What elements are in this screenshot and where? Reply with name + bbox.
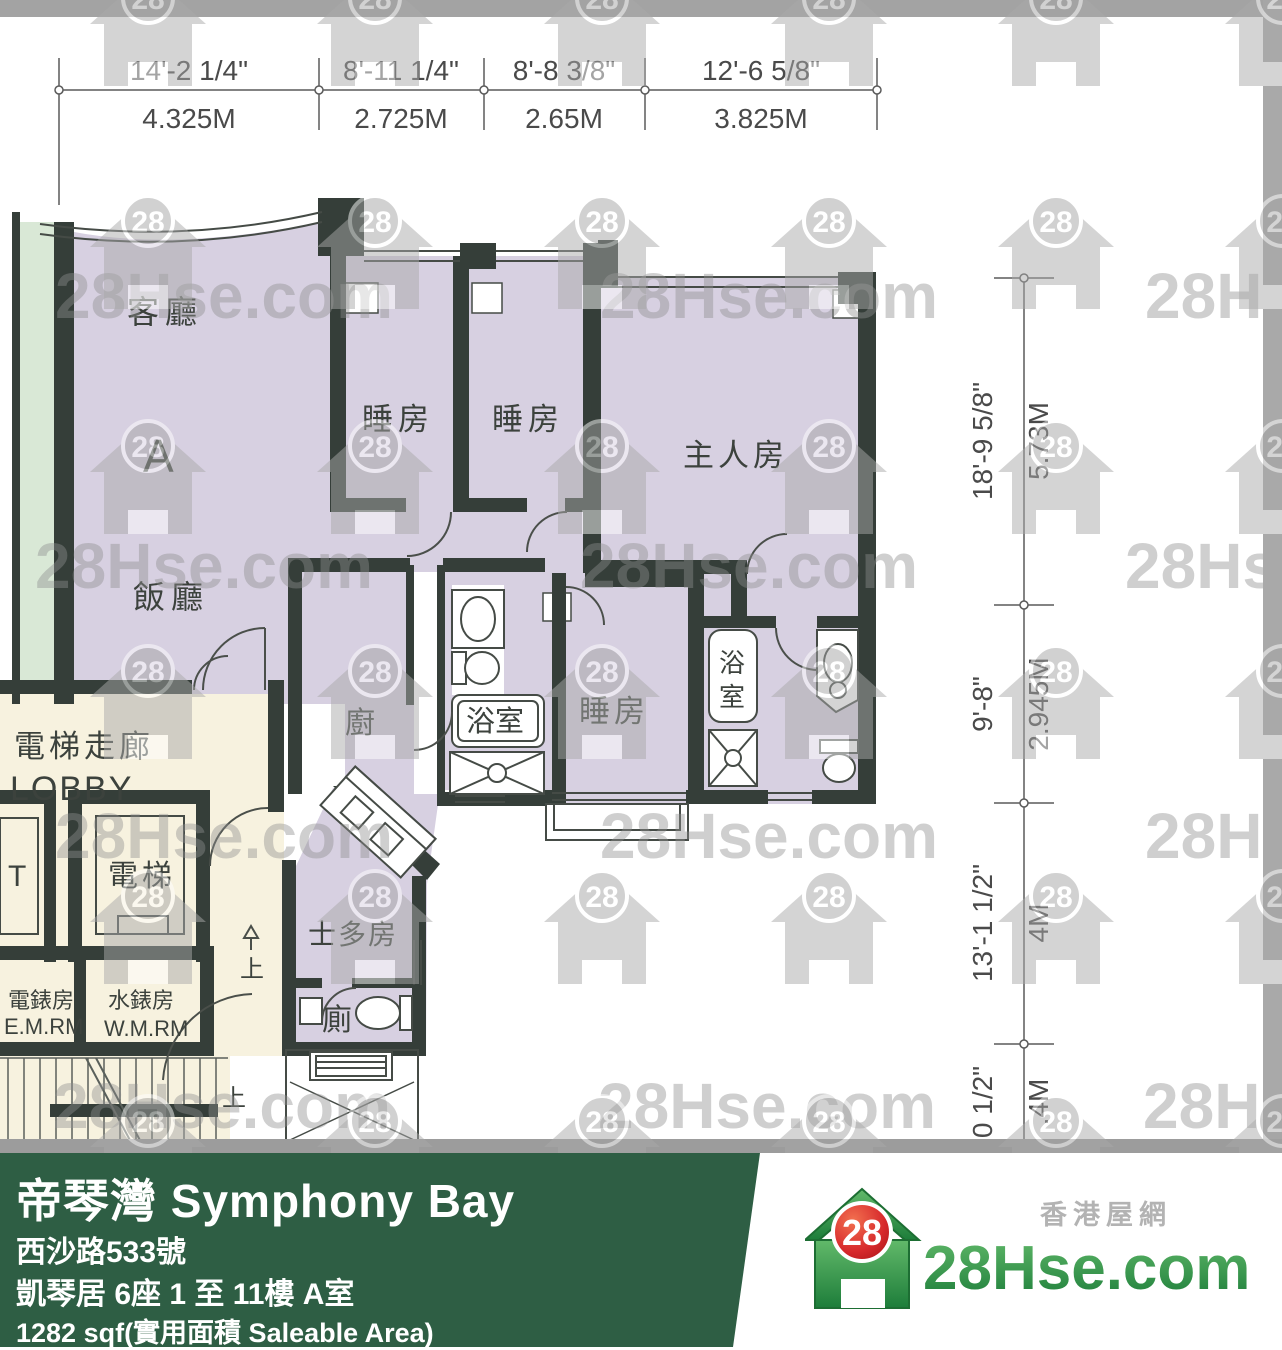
room-label-lift-cut: T: [8, 860, 26, 893]
watermark-text: 28Hse.com: [598, 1070, 936, 1142]
duct-strip: [414, 572, 437, 794]
watermark-text: 28Hse.com: [600, 260, 938, 332]
dim-top-m-1: 4.325M: [142, 103, 235, 134]
room-label-bedroom2: 睡房: [492, 402, 564, 437]
dim-top-m-3: 2.65M: [525, 103, 603, 134]
wc: [465, 652, 499, 684]
room-label-toilet: 廁: [322, 1004, 352, 1037]
room-label-masterbath-2: 室: [719, 682, 745, 712]
room-label-wmr-cn: 水錶房: [108, 988, 174, 1013]
basin: [461, 597, 495, 641]
room-label-bath: 浴室: [466, 705, 524, 738]
watermark-text: 28Hse.com: [580, 530, 918, 602]
dim-right-feet-4: 0 1/2": [967, 1066, 998, 1138]
estate-title: 帝琴灣 Symphony Bay: [16, 1165, 515, 1231]
dim-top-m-2: 2.725M: [354, 103, 447, 134]
watermark-text: 28Hse.com: [1145, 800, 1282, 872]
estate-area: 1282 sqf(實用面積 Saleable Area): [16, 1311, 434, 1350]
up-label-1: 上: [240, 956, 264, 983]
room-label-wmr-en: W.M.RM: [104, 1016, 188, 1041]
logo-house-icon: 28: [805, 1189, 919, 1308]
dim-top-m-4: 3.825M: [714, 103, 807, 134]
estate-address: 西沙路533號: [16, 1227, 186, 1271]
room-label-emr-en: E.M.RM: [4, 1014, 83, 1039]
planter-strip: [20, 222, 54, 704]
watermark-text: 28Hse.com: [600, 800, 938, 872]
dim-right-feet-1: 18'-9 5/8": [967, 382, 998, 500]
footer-bar: 帝琴灣 Symphony Bay 西沙路533號 凱琴居 6座 1 至 11樓 …: [0, 1153, 1282, 1347]
watermark-text: 28Hse.com: [1125, 530, 1282, 602]
dim-right-feet-3: 13'-1 1/2": [967, 864, 998, 982]
watermark-text: 28Hse.com: [35, 530, 373, 602]
floorplan-page: { "watermark": { "text": "28Hse.com", "b…: [0, 0, 1282, 1347]
dim-right-feet-2: 9'-8": [967, 676, 998, 732]
estate-block-info: 凱琴居 6座 1 至 11樓 A室: [16, 1269, 354, 1313]
watermark-text: 28Hse.com: [55, 800, 393, 872]
room-label-emr-cn: 電錶房: [8, 988, 74, 1013]
logo-badge: 28: [842, 1212, 882, 1253]
toilet-wc: [356, 997, 400, 1029]
floor-plan-canvas: 28: [0, 0, 1282, 1153]
room-label-master: 主人房: [683, 438, 788, 473]
logo-text: 28Hse.com: [923, 1234, 1250, 1303]
wc-tank: [452, 652, 466, 684]
toilet-sink: [300, 998, 322, 1024]
room-label-masterbath-1: 浴: [719, 648, 745, 678]
bedroom2-recess: [472, 283, 502, 313]
site-logo: 28 28Hse.com: [805, 1187, 1275, 1317]
toilet-tank: [400, 996, 412, 1030]
